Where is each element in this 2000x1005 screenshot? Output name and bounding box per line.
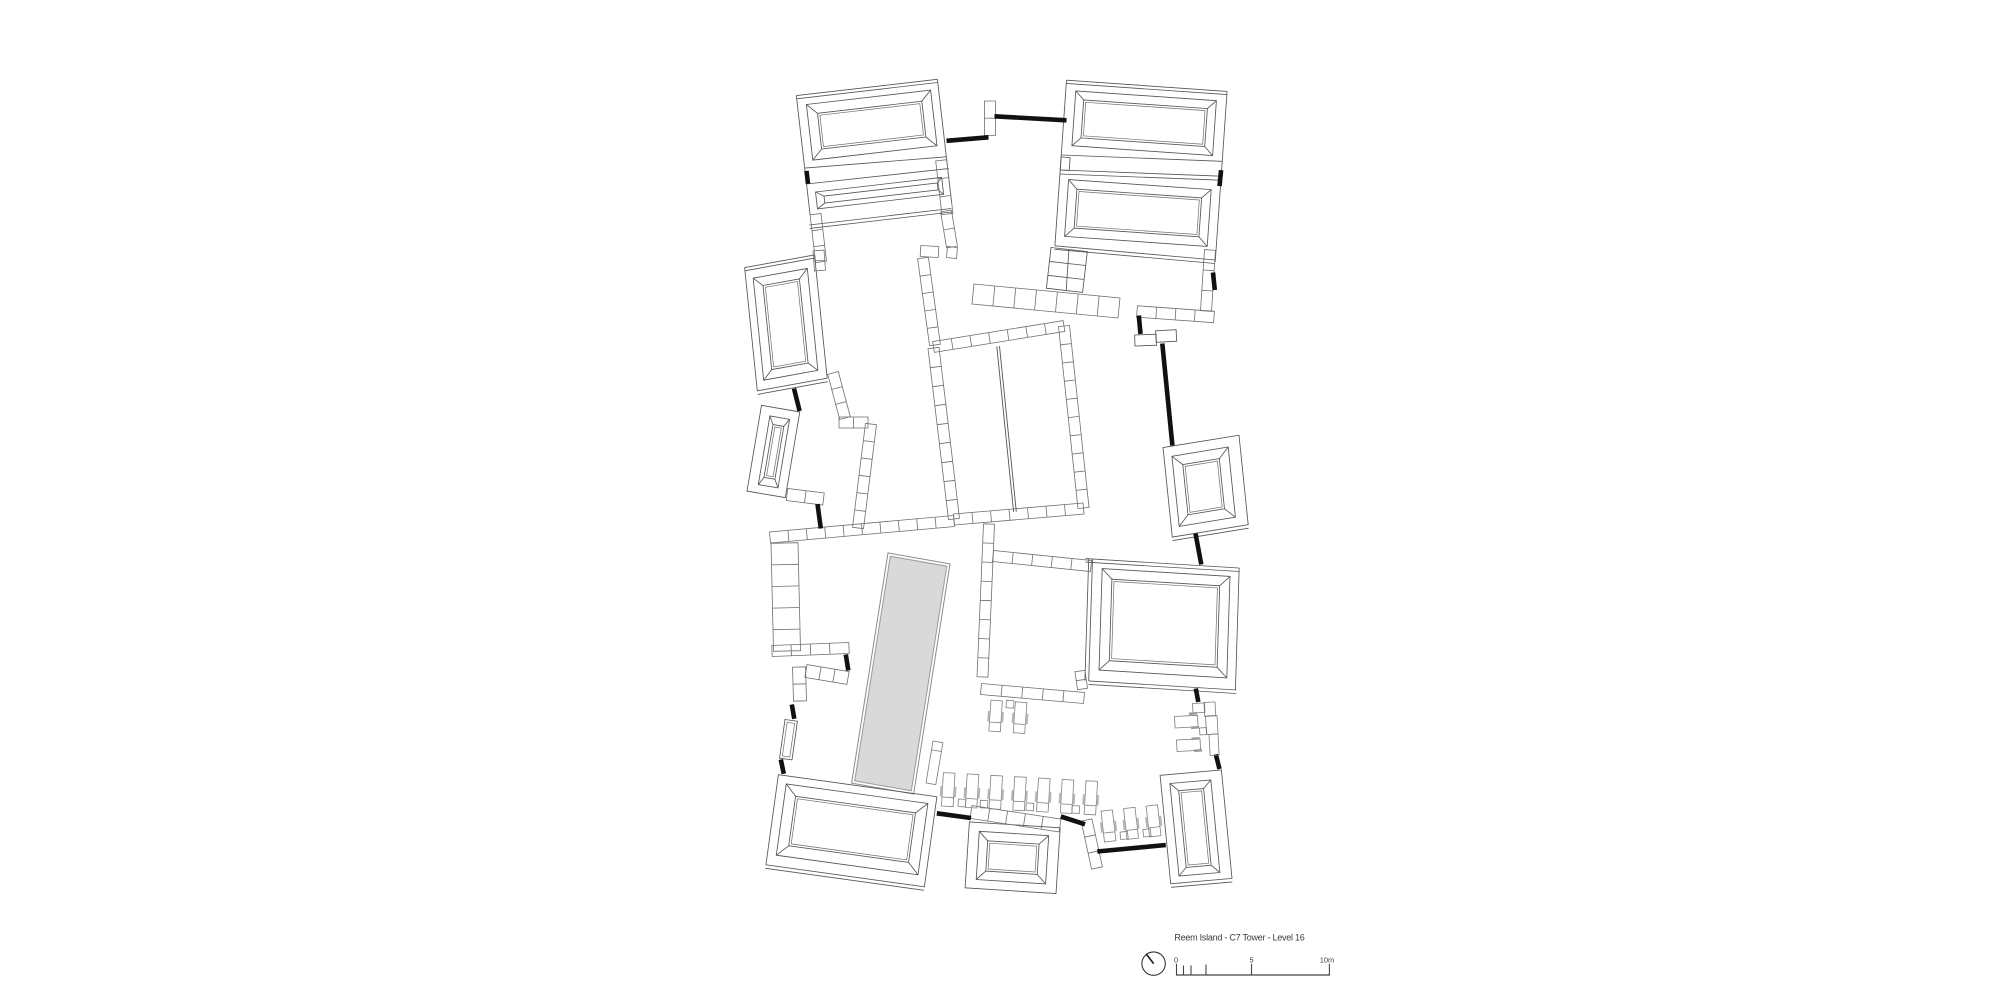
svg-text:0: 0 [1174,955,1178,964]
svg-text:Reem Island - C7 Tower - Level: Reem Island - C7 Tower - Level 16 [1174,932,1304,942]
svg-text:10m: 10m [1320,955,1334,964]
svg-text:5: 5 [1249,955,1253,964]
